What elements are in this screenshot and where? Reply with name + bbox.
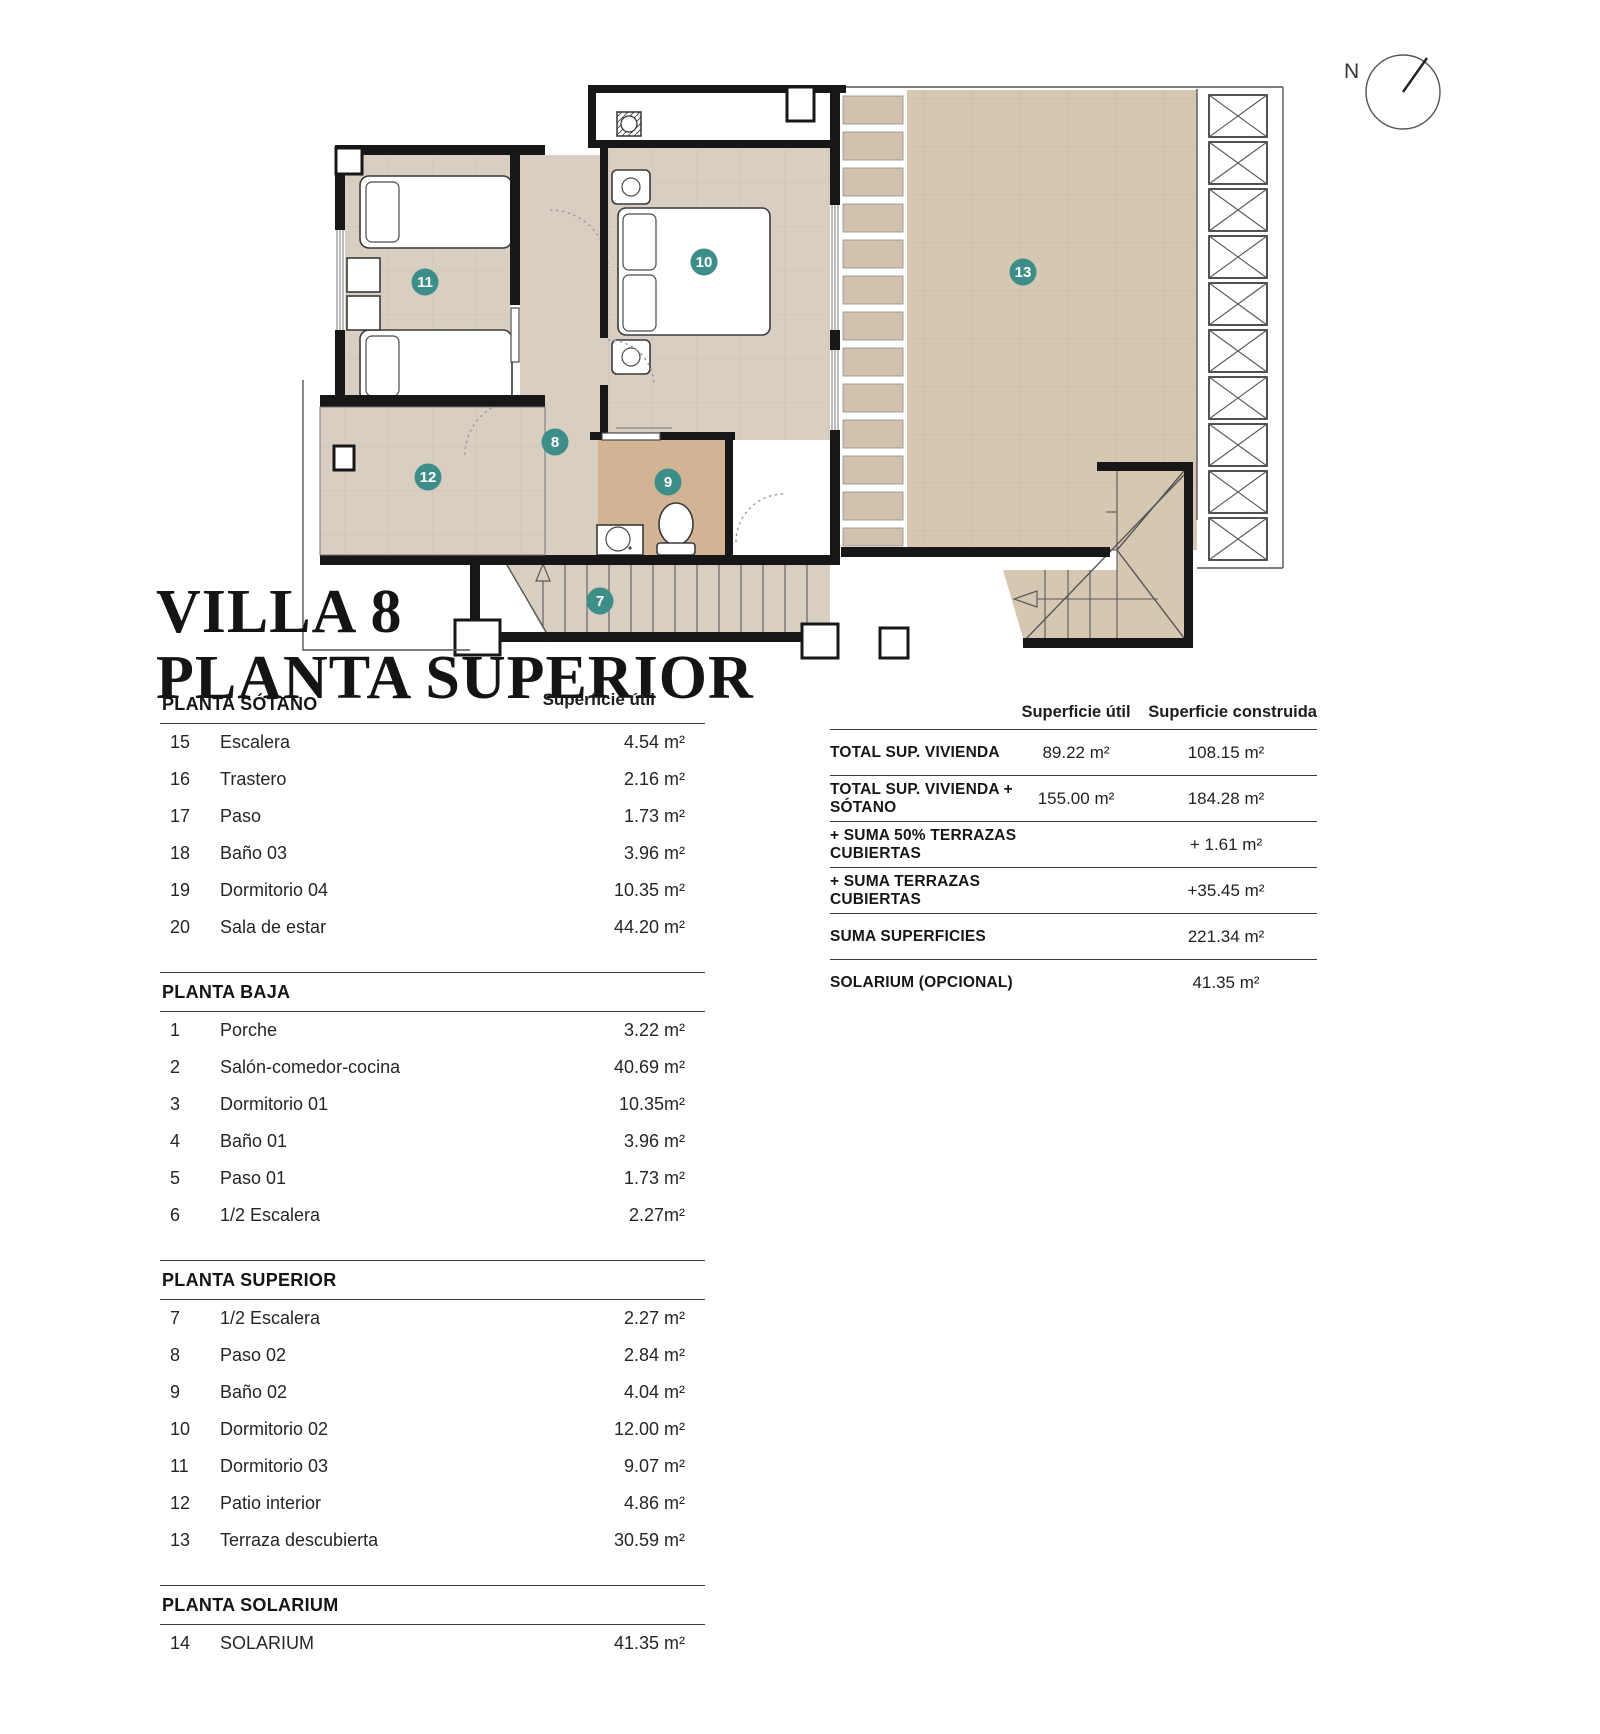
section-header: PLANTA SUPERIOR	[160, 1260, 705, 1300]
room-label: Dormitorio 04	[220, 880, 614, 901]
totals-superficie-construida: 41.35 m²	[1135, 973, 1317, 993]
room-label: 1/2 Escalera	[220, 1205, 629, 1226]
totals-superficie-construida: + 1.61 m²	[1135, 835, 1317, 855]
room-number: 14	[160, 1633, 220, 1654]
room-label: Escalera	[220, 732, 624, 753]
title-line1: VILLA 8	[156, 580, 754, 646]
room-area-value: 3.96 m²	[624, 1131, 705, 1152]
room-area-row: 4 Baño 01 3.96 m²	[160, 1123, 705, 1160]
room-area-value: 2.27 m²	[624, 1308, 705, 1329]
room-area-row: 19 Dormitorio 04 10.35 m²	[160, 872, 705, 909]
north-indicator-svg: N	[1330, 35, 1480, 165]
totals-row: TOTAL SUP. VIVIENDA + SÓTANO 155.00 m² 1…	[830, 776, 1317, 822]
totals-table-header: Superficie útil Superficie construida	[830, 688, 1317, 730]
room-badge: 10	[691, 249, 718, 276]
room-label: 1/2 Escalera	[220, 1308, 624, 1329]
nightstand-icon	[347, 296, 380, 330]
room-area-value: 2.84 m²	[624, 1345, 705, 1366]
room-area-row: 3 Dormitorio 01 10.35m²	[160, 1086, 705, 1123]
room-number: 10	[160, 1419, 220, 1440]
exterior-stair-winder-floor	[1117, 471, 1184, 638]
room-number: 2	[160, 1057, 220, 1078]
room-number: 4	[160, 1131, 220, 1152]
totals-label: + SUMA TERRAZAS CUBIERTAS	[830, 873, 1017, 909]
room-area-row: 1 Porche 3.22 m²	[160, 1012, 705, 1049]
room-badge: 8	[542, 429, 569, 456]
room-number: 5	[160, 1168, 220, 1189]
room-number: 9	[160, 1382, 220, 1403]
totals-label: + SUMA 50% TERRAZAS CUBIERTAS	[830, 827, 1017, 863]
totals-label: TOTAL SUP. VIVIENDA	[830, 744, 1017, 762]
room-area-row: 11 Dormitorio 03 9.07 m²	[160, 1448, 705, 1485]
pillow-icon	[623, 214, 656, 270]
room-area-value: 4.04 m²	[624, 1382, 705, 1403]
room-area-value: 41.35 m²	[614, 1633, 705, 1654]
room-area-value: 40.69 m²	[614, 1057, 705, 1078]
room-label: Salón-comedor-cocina	[220, 1057, 614, 1078]
section-header: PLANTA BAJA	[160, 972, 705, 1012]
pillow-icon	[366, 336, 399, 396]
room-label: Paso 01	[220, 1168, 624, 1189]
nightstand-icon	[347, 258, 380, 292]
room-area-row: 5 Paso 01 1.73 m²	[160, 1160, 705, 1197]
room-area-row: 17 Paso 1.73 m²	[160, 798, 705, 835]
page: 7 8 9 10 11	[0, 0, 1600, 1734]
north-indicator: N	[1330, 35, 1480, 165]
room-area-value: 2.27m²	[629, 1205, 705, 1226]
totals-row: + SUMA TERRAZAS CUBIERTAS +35.45 m²	[830, 868, 1317, 914]
totals-superficie-util: 89.22 m²	[1017, 743, 1135, 763]
totals-superficie-util: 155.00 m²	[1017, 789, 1135, 809]
room-area-value: 10.35 m²	[614, 880, 705, 901]
totals-superficie-construida: +35.45 m²	[1135, 881, 1317, 901]
totals-label: SOLARIUM (OPCIONAL)	[830, 974, 1017, 992]
room-area-value: 10.35m²	[619, 1094, 705, 1115]
room-number: 12	[160, 1493, 220, 1514]
room-area-value: 12.00 m²	[614, 1419, 705, 1440]
room-label: Patio interior	[220, 1493, 624, 1514]
room-number: 11	[160, 1456, 220, 1477]
room-area-value: 4.86 m²	[624, 1493, 705, 1514]
svg-text:13: 13	[1015, 264, 1032, 281]
left-table-value-header: Superficie útil	[543, 690, 655, 710]
room-number: 17	[160, 806, 220, 827]
room-label: Dormitorio 01	[220, 1094, 619, 1115]
room-label: Dormitorio 02	[220, 1419, 614, 1440]
lamp-icon	[622, 178, 640, 196]
totals-table: Superficie útil Superficie construida TO…	[830, 688, 1317, 1005]
room-area-row: 20 Sala de estar 44.20 m²	[160, 909, 705, 946]
sink-icon	[606, 527, 630, 551]
col-superficie-construida-header: Superficie construida	[1135, 703, 1317, 722]
svg-text:11: 11	[417, 274, 433, 291]
totals-row: TOTAL SUP. VIVIENDA 89.22 m² 108.15 m²	[830, 730, 1317, 776]
room-label: Dormitorio 03	[220, 1456, 624, 1477]
room-label: SOLARIUM	[220, 1633, 614, 1654]
room-area-row: 16 Trastero 2.16 m²	[160, 761, 705, 798]
column-icon	[617, 112, 641, 136]
room-number: 6	[160, 1205, 220, 1226]
room-label: Paso	[220, 806, 624, 827]
room-area-value: 3.96 m²	[624, 843, 705, 864]
room-number: 15	[160, 732, 220, 753]
room-area-value: 3.22 m²	[624, 1020, 705, 1041]
svg-text:12: 12	[420, 469, 437, 486]
totals-row: SOLARIUM (OPCIONAL) 41.35 m²	[830, 960, 1317, 1005]
toilet-tank-icon	[657, 543, 695, 555]
room-label: Baño 03	[220, 843, 624, 864]
room-number: 3	[160, 1094, 220, 1115]
room-badge: 13	[1010, 259, 1037, 286]
pergola-beams	[1209, 95, 1267, 560]
north-label: N	[1344, 60, 1359, 83]
room-area-row: 15 Escalera 4.54 m²	[160, 724, 705, 761]
room-number: 1	[160, 1020, 220, 1041]
room-label: Paso 02	[220, 1345, 624, 1366]
room-number: 20	[160, 917, 220, 938]
room-area-value: 30.59 m²	[614, 1530, 705, 1551]
room-area-row: 13 Terraza descubierta 30.59 m²	[160, 1522, 705, 1559]
room-area-value: 2.16 m²	[624, 769, 705, 790]
svg-text:8: 8	[551, 434, 559, 451]
floor-plan-svg: 7 8 9 10 11	[300, 50, 1330, 670]
room-area-value: 9.07 m²	[624, 1456, 705, 1477]
totals-superficie-construida: 184.28 m²	[1135, 789, 1317, 809]
totals-superficie-construida: 108.15 m²	[1135, 743, 1317, 763]
totals-row: SUMA SUPERFICIES 221.34 m²	[830, 914, 1317, 960]
room-number: 8	[160, 1345, 220, 1366]
room-area-value: 1.73 m²	[624, 806, 705, 827]
room-area-row: 2 Salón-comedor-cocina 40.69 m²	[160, 1049, 705, 1086]
room-area-value: 4.54 m²	[624, 732, 705, 753]
room-badge: 12	[415, 464, 442, 491]
compass-needle-icon	[1403, 58, 1427, 92]
toilet-icon	[659, 503, 693, 545]
totals-superficie-construida: 221.34 m²	[1135, 927, 1317, 947]
room-area-row: 9 Baño 02 4.04 m²	[160, 1374, 705, 1411]
room-number: 7	[160, 1308, 220, 1329]
room-label: Terraza descubierta	[220, 1530, 614, 1551]
room-number: 16	[160, 769, 220, 790]
room-label: Baño 02	[220, 1382, 624, 1403]
room-number: 18	[160, 843, 220, 864]
left-table-body: PLANTA SÓTANO 15 Escalera 4.54 m² 16 Tra…	[160, 688, 705, 1662]
room-label: Baño 01	[220, 1131, 624, 1152]
room-area-row: 12 Patio interior 4.86 m²	[160, 1485, 705, 1522]
room-area-row: 8 Paso 02 2.84 m²	[160, 1337, 705, 1374]
room-area-value: 44.20 m²	[614, 917, 705, 938]
room-badge: 11	[412, 269, 439, 296]
totals-label: TOTAL SUP. VIVIENDA + SÓTANO	[830, 781, 1017, 817]
room-area-row: 10 Dormitorio 02 12.00 m²	[160, 1411, 705, 1448]
svg-text:10: 10	[696, 254, 713, 271]
room-number: 19	[160, 880, 220, 901]
terrace-louver-strip	[841, 90, 905, 548]
room-area-row: 18 Baño 03 3.96 m²	[160, 835, 705, 872]
room-label: Trastero	[220, 769, 624, 790]
col-superficie-util-header: Superficie útil	[1017, 703, 1135, 722]
totals-label: SUMA SUPERFICIES	[830, 928, 1017, 946]
room-area-value: 1.73 m²	[624, 1168, 705, 1189]
pillow-icon	[623, 275, 656, 331]
room-area-row: 7 1/2 Escalera 2.27 m²	[160, 1300, 705, 1337]
room-number: 13	[160, 1530, 220, 1551]
room-area-row: 14 SOLARIUM 41.35 m²	[160, 1625, 705, 1662]
room-badge: 9	[655, 469, 682, 496]
svg-text:9: 9	[664, 474, 672, 491]
floor-plan: 7 8 9 10 11	[300, 50, 1330, 670]
pillow-icon	[366, 182, 399, 242]
section-header: PLANTA SOLARIUM	[160, 1585, 705, 1625]
totals-table-body: TOTAL SUP. VIVIENDA 89.22 m² 108.15 m² T…	[830, 730, 1317, 1005]
room-area-row: 6 1/2 Escalera 2.27m²	[160, 1197, 705, 1234]
room-label: Sala de estar	[220, 917, 614, 938]
totals-row: + SUMA 50% TERRAZAS CUBIERTAS + 1.61 m²	[830, 822, 1317, 868]
room-areas-table: Superficie útil PLANTA SÓTANO 15 Escaler…	[160, 688, 705, 1662]
room-label: Porche	[220, 1020, 624, 1041]
